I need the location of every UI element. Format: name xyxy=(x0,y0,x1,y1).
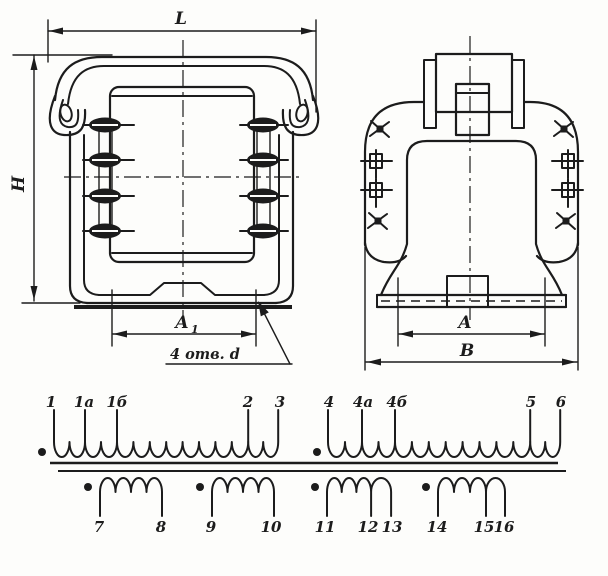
dimension-A1: A 1 xyxy=(113,313,255,338)
dimension-label-L: L xyxy=(174,9,187,29)
tab-plate-right xyxy=(512,60,524,128)
terminal-label: 8 xyxy=(156,518,167,536)
terminal-label: 10 xyxy=(261,518,282,536)
arrowhead xyxy=(113,331,127,338)
winding-secondary-2: 9 10 xyxy=(196,478,282,536)
center-block xyxy=(447,276,488,307)
dimension-A: A xyxy=(398,278,545,346)
holes-note-label: 4 отв. d xyxy=(170,346,240,363)
dimension-H: H xyxy=(9,55,112,303)
terminal-label: 9 xyxy=(206,518,217,536)
terminal-label: 11 xyxy=(315,518,336,536)
leader-line xyxy=(261,307,290,364)
arrowhead xyxy=(301,28,315,35)
terminal-label: 6 xyxy=(556,393,567,411)
winding-tap xyxy=(85,410,248,442)
arrowhead xyxy=(399,331,413,338)
polarity-dot xyxy=(313,448,321,456)
side-view: A B xyxy=(361,36,583,370)
coil-body xyxy=(110,87,254,262)
arrowhead xyxy=(241,331,255,338)
tab-inner xyxy=(456,84,489,135)
terminal-label: 2 xyxy=(242,393,253,411)
terminal-label: 13 xyxy=(382,518,403,536)
base-flange xyxy=(377,276,566,307)
pin-cross-icon xyxy=(370,121,389,137)
transformer-technical-drawing: L H xyxy=(0,0,608,576)
terminal-stack-right xyxy=(240,118,288,239)
polarity-dot xyxy=(84,483,92,491)
winding-schematic: 1 1а 1б 2 3 4 4а 4б 5 6 7 8 9 xyxy=(38,393,567,536)
dimension-label-H: H xyxy=(9,175,29,193)
terminal-label: 4а xyxy=(353,393,373,411)
winding-secondary-1: 7 8 xyxy=(84,478,167,536)
terminal-label: 16 xyxy=(494,518,515,536)
arrowhead xyxy=(562,359,576,366)
arrowhead xyxy=(49,28,63,35)
top-tab xyxy=(424,54,524,135)
terminal-label: 1а xyxy=(74,393,94,411)
winding-secondary-4: 14 15 16 xyxy=(422,478,515,536)
front-view: L H xyxy=(9,9,318,364)
terminal-label: 4 xyxy=(324,393,334,411)
arrowhead xyxy=(31,56,38,70)
polarity-dot xyxy=(422,483,430,491)
terminal-label: 14 xyxy=(427,518,448,536)
dimension-label-B: B xyxy=(459,341,474,361)
dimension-label-A1-sub: 1 xyxy=(191,323,199,336)
bracket-body xyxy=(365,102,578,262)
terminal-label: 1б xyxy=(106,393,127,411)
terminal-label: 3 xyxy=(275,393,285,411)
coil-bell xyxy=(381,141,562,295)
pin-cross-icon xyxy=(554,121,573,137)
arrowhead xyxy=(367,359,381,366)
winding-tap xyxy=(362,410,530,442)
arrowhead xyxy=(31,286,38,300)
polarity-dot xyxy=(38,448,46,456)
dimension-label-A1: A xyxy=(173,313,188,333)
polarity-dot xyxy=(196,483,204,491)
terminal-label: 4б xyxy=(386,393,407,411)
terminal-label: 1 xyxy=(46,393,56,411)
terminal-stack-left xyxy=(83,118,134,239)
terminal-label: 15 xyxy=(474,518,495,536)
winding-primary-1: 1 1а 1б 2 3 xyxy=(38,393,285,457)
winding-primary-2: 4 4а 4б 5 6 xyxy=(313,393,567,457)
arrowhead xyxy=(530,331,544,338)
pin-cross-icon xyxy=(368,213,387,229)
dimension-label-A: A xyxy=(456,313,471,333)
terminal-label: 7 xyxy=(94,518,105,536)
terminal-label: 5 xyxy=(526,393,536,411)
winding-secondary-3: 11 12 13 xyxy=(311,478,402,536)
pin-cross-icon xyxy=(556,213,575,229)
polarity-dot xyxy=(311,483,319,491)
tab-plate-left xyxy=(424,60,436,128)
terminal-label: 12 xyxy=(358,518,379,536)
